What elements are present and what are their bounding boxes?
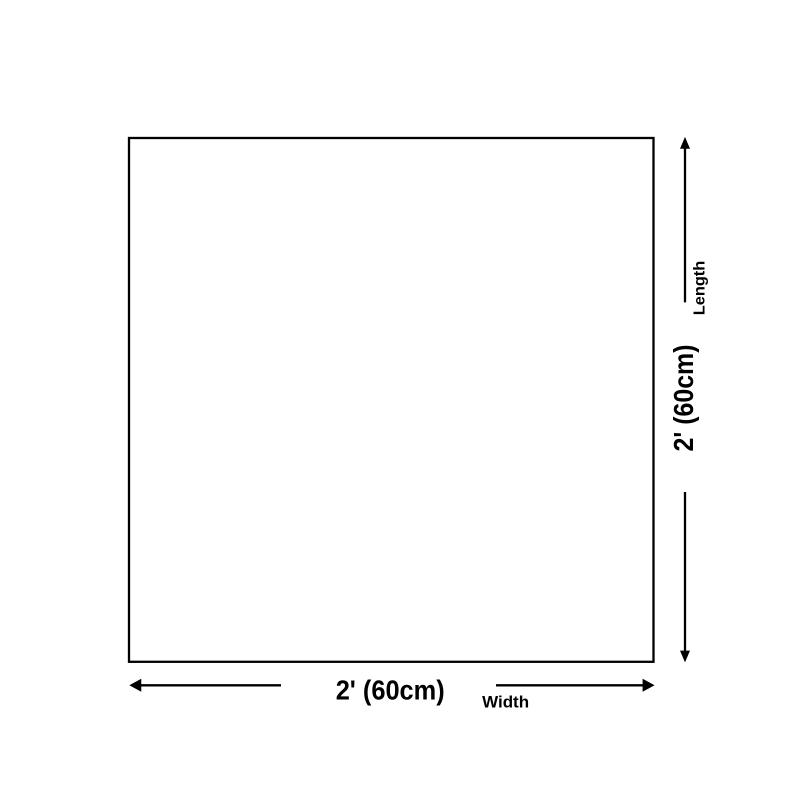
svg-text:2' (60cm): 2' (60cm) [668,345,699,452]
svg-text:2' (60cm): 2' (60cm) [336,674,445,705]
svg-text:Width: Width [482,694,529,712]
svg-text:Length: Length [692,261,709,316]
